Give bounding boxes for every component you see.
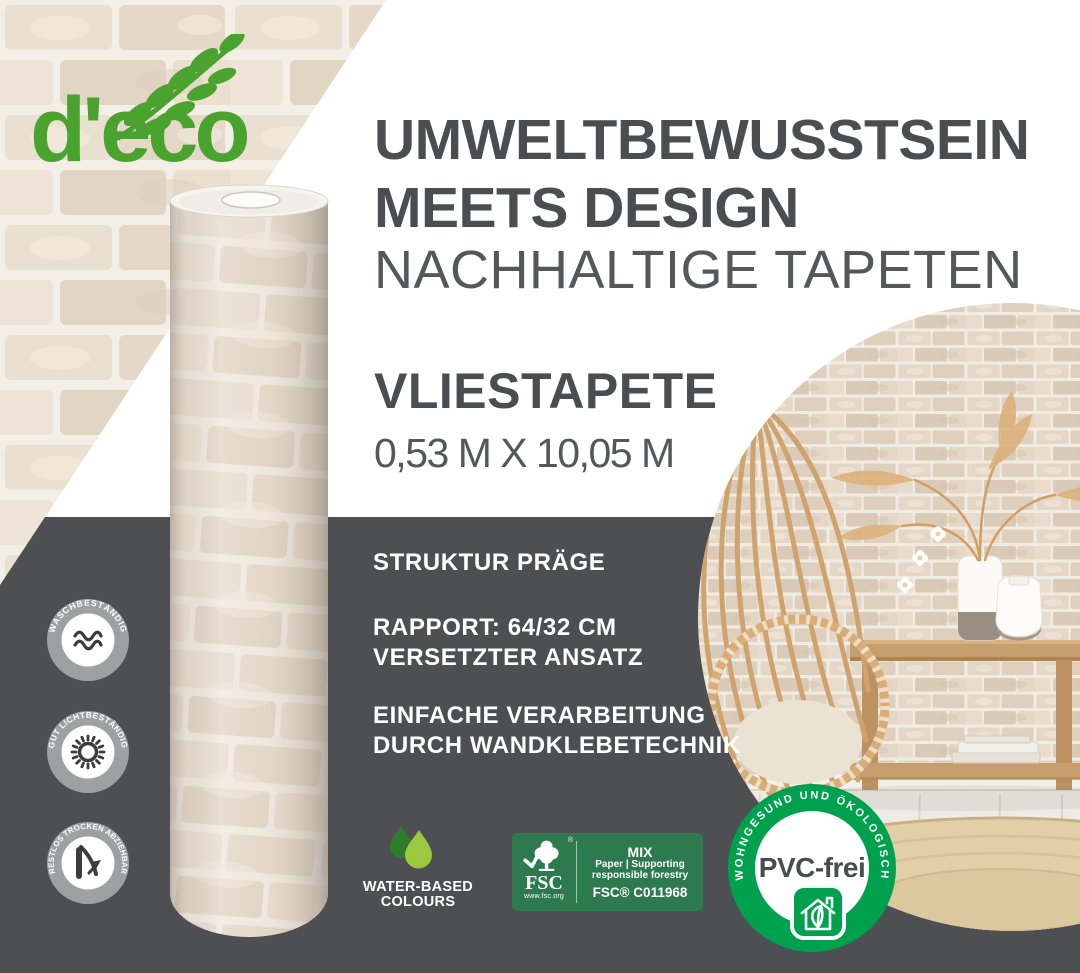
feature-rapport: RAPPORT: 64/32 CM VERSETZTER ANSATZ <box>373 613 643 673</box>
seal-lightfast: GUT LICHTBESTÄNDIG <box>40 704 136 800</box>
wallpaper-roll <box>170 185 328 937</box>
water-based-label: WATER-BASED COLOURS <box>347 880 489 909</box>
headline-line2: MEETS DESIGN <box>374 180 799 237</box>
chair-cushion <box>734 700 862 784</box>
pvc-free-label: PVC-frei <box>759 852 865 883</box>
seal-strippable: RESTLOS TROCKEN ABZIEHBAR <box>40 815 136 911</box>
pvc-free-badge: WOHNGESUND UND ÖKOLOGISCH PVC-frei <box>720 776 904 960</box>
books-stack <box>952 736 1040 763</box>
feature-rapport-line1: RAPPORT: 64/32 CM <box>373 613 643 643</box>
fsc-label: ® FSC www.fsc.org MIX Paper | Supporting… <box>512 833 703 911</box>
fsc-grade: MIX <box>628 844 653 860</box>
feature-structure: STRUKTUR PRÄGE <box>373 548 605 578</box>
feature-rapport-line2: VERSETZTER ANSATZ <box>373 643 643 673</box>
fsc-license-code: FSC® C011968 <box>593 885 688 900</box>
water-based-line2: COLOURS <box>347 895 489 910</box>
fsc-logo-block: ® FSC www.fsc.org <box>512 833 576 911</box>
brand-logo: d'eco <box>30 84 247 176</box>
feature-processing-line2: DURCH WANDKLEBETECHNIK <box>373 731 741 761</box>
feature-processing: EINFACHE VERARBEITUNG DURCH WANDKLEBETEC… <box>373 701 741 761</box>
headline-line3: NACHHALTIGE TAPETEN <box>374 243 1023 297</box>
roll-core-hole <box>222 192 280 208</box>
fsc-tree-check-icon <box>522 838 566 874</box>
fsc-wordmark: FSC <box>525 874 563 892</box>
fsc-website: www.fsc.org <box>524 892 564 901</box>
seal-washable: WASCHBESTÄNDIG <box>40 592 136 688</box>
eco-house-leaf-icon <box>792 886 844 938</box>
fsc-desc-line1: Paper | Supporting <box>595 860 684 871</box>
water-drops-icon <box>385 824 449 880</box>
product-dimensions: 0,53 M X 10,05 M <box>374 430 674 477</box>
feature-processing-line1: EINFACHE VERARBEITUNG <box>373 701 741 731</box>
water-based-line1: WATER-BASED <box>347 880 489 895</box>
headline-line1: UMWELTBEWUSSTSEIN <box>374 112 1029 169</box>
fsc-registered-mark: ® <box>568 837 573 844</box>
fsc-desc-line2: responsible forestry <box>592 871 688 882</box>
product-name: VLIESTAPETE <box>374 362 718 420</box>
fsc-text-block: MIX Paper | Supporting responsible fores… <box>577 833 703 911</box>
product-banner: d'eco UMWELTBEWUSSTSEIN MEETS DESIGN NAC… <box>0 0 1080 973</box>
